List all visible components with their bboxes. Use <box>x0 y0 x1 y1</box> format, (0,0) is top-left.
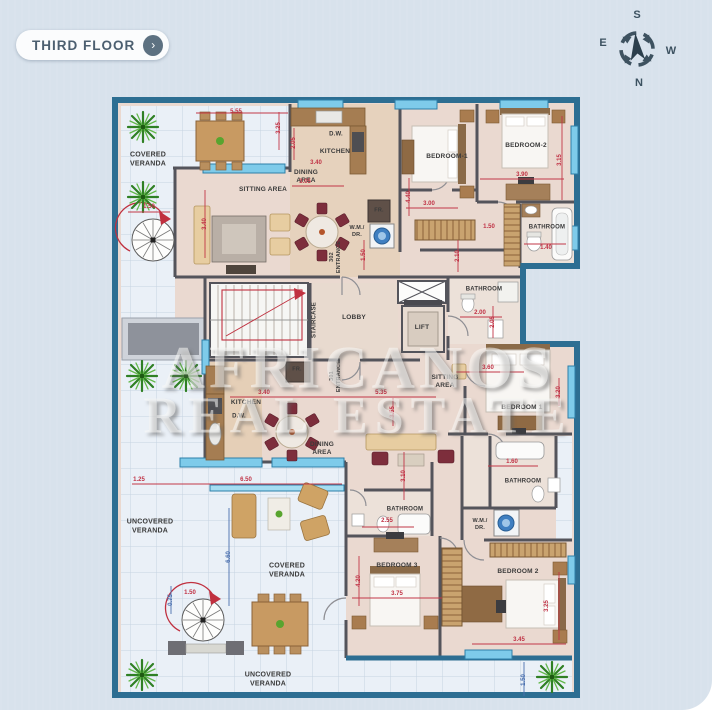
main-staircase <box>210 283 308 357</box>
plant-icon <box>171 361 201 391</box>
washing-machine-upper <box>370 224 394 248</box>
wardrobe-hall <box>442 548 462 626</box>
plant-icon <box>127 361 157 391</box>
planter-box <box>122 318 205 360</box>
wardrobe-corridor-upper <box>415 220 475 240</box>
plant-icon <box>127 660 157 690</box>
washing-machine-lower <box>494 510 519 536</box>
plant-icon <box>537 662 567 692</box>
page-background: THIRD FLOOR › S E W N <box>0 0 712 710</box>
screenshot-stage: THIRD FLOOR › S E W N <box>0 0 712 710</box>
fridge-lower <box>286 362 310 382</box>
plant-icon <box>128 112 158 142</box>
kitchen-lower <box>206 366 224 460</box>
fridge-upper <box>368 200 390 222</box>
floorplan-svg <box>0 0 712 710</box>
veranda-dining-table <box>196 112 244 170</box>
veranda-dining-table-lower <box>252 594 308 654</box>
wardrobe-bedroom2 <box>490 543 566 557</box>
lift-shaft <box>398 281 446 352</box>
plant-icon <box>128 182 158 212</box>
